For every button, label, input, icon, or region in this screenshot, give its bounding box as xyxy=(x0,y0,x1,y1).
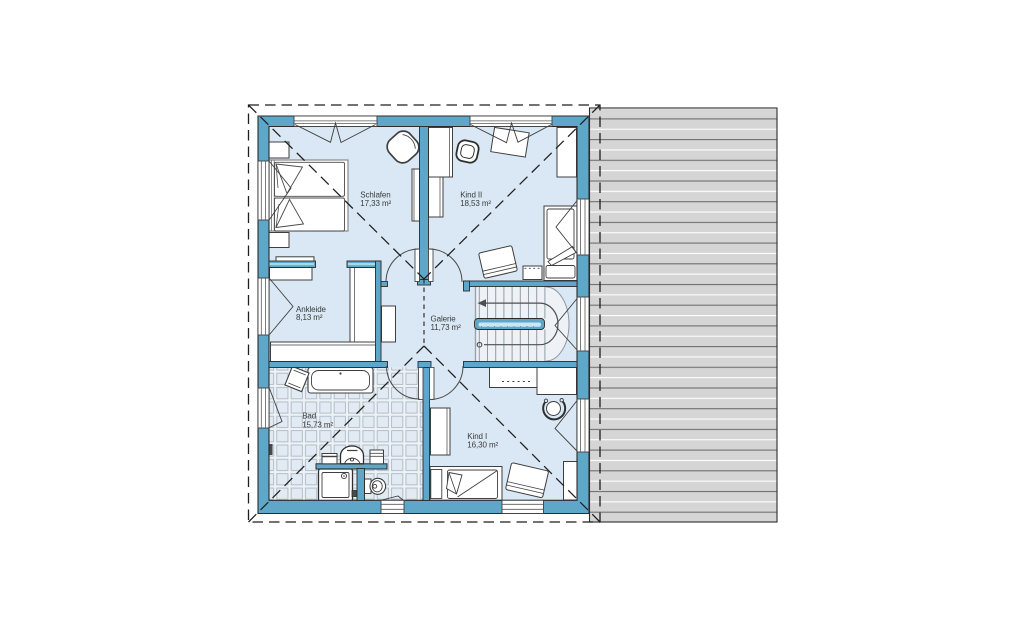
svg-text:16,30 m²: 16,30 m² xyxy=(467,440,498,449)
svg-text:17,33 m²: 17,33 m² xyxy=(360,199,391,208)
svg-text:8,13 m²: 8,13 m² xyxy=(296,313,323,322)
svg-text:Bad: Bad xyxy=(302,412,316,421)
svg-text:15,73 m²: 15,73 m² xyxy=(302,420,333,429)
svg-text:Schlafen: Schlafen xyxy=(360,190,390,199)
svg-text:11,73 m²: 11,73 m² xyxy=(431,323,462,332)
svg-text:18,53 m²: 18,53 m² xyxy=(460,199,491,208)
